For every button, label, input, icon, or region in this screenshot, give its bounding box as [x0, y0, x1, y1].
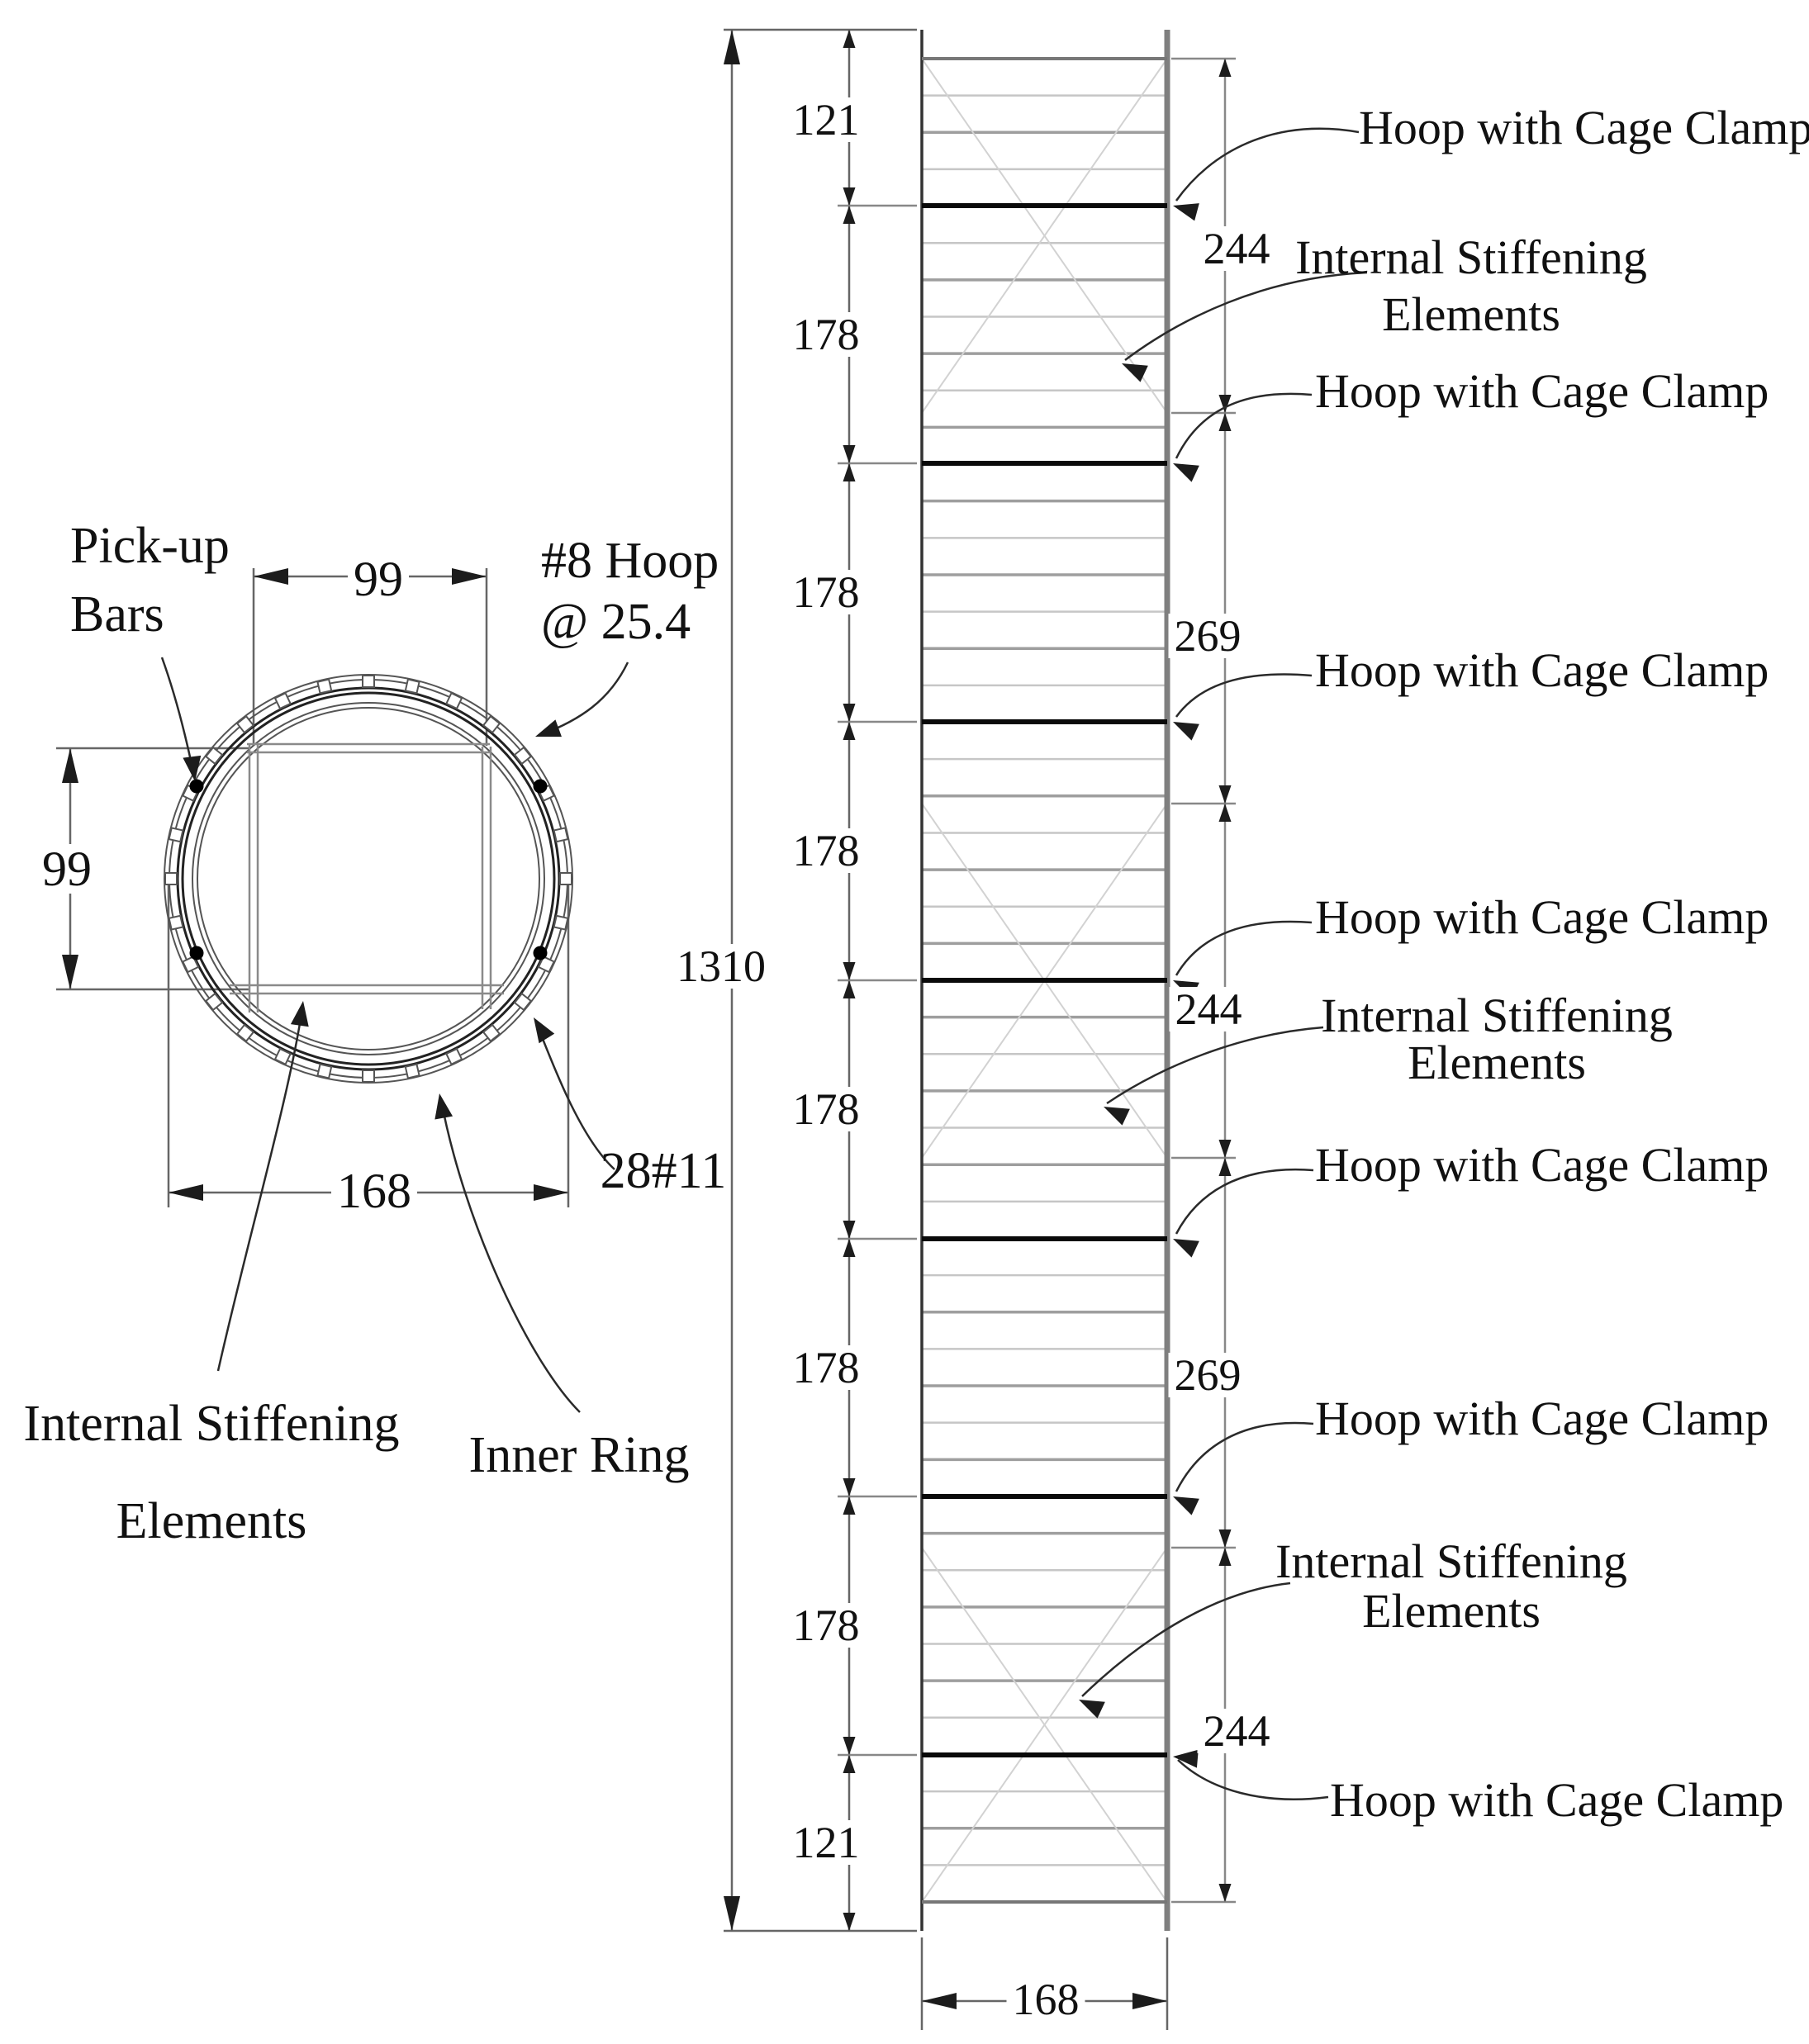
- leader-hoop-clamp-5-arrowhead: [1173, 1239, 1199, 1258]
- cross-width-dim: 99: [348, 554, 409, 604]
- chain-tick-arrow: [1219, 1884, 1232, 1902]
- chain-tick-arrow: [1219, 804, 1232, 822]
- longitudinal-bar-square: [363, 1070, 374, 1082]
- left-segment-dim-3: 178: [787, 828, 866, 873]
- overall-dim-arrow: [724, 1896, 740, 1931]
- pickup-bar-dot: [534, 780, 548, 794]
- ise-label-1-line1: Internal Stiffening: [1295, 234, 1647, 282]
- chain-tick-arrow: [843, 187, 856, 206]
- chain-tick-arrow: [843, 1221, 856, 1239]
- leader-hoop-clamp-7-arrowhead: [1173, 1750, 1199, 1768]
- left-segment-dim-5: 178: [787, 1345, 866, 1390]
- elevation-width-dim: 168: [1007, 1977, 1085, 2022]
- longitudinal-bar-square: [169, 828, 183, 842]
- longitudinal-bar-square: [406, 680, 420, 694]
- cross-dim-arrow: [62, 748, 78, 783]
- longitudinal-bar-square: [560, 873, 572, 884]
- leader-hoop-clamp-6-arrowhead: [1173, 1496, 1199, 1515]
- inner-ring-label: Inner Ring: [469, 1430, 690, 1481]
- leader-hoop-clamp-5: [1176, 1169, 1313, 1234]
- chain-tick-arrow: [843, 1737, 856, 1755]
- chain-tick-arrow: [843, 1913, 856, 1931]
- chain-tick-arrow: [1219, 1140, 1232, 1158]
- cross-dim-arrow: [452, 568, 487, 585]
- right-segment-dim-1: 269: [1169, 614, 1247, 658]
- left-segment-dim-4: 178: [787, 1087, 866, 1131]
- leader-ise-2-arrowhead: [1104, 1107, 1130, 1126]
- cross-ise-label-line1: Internal Stiffening: [23, 1398, 399, 1449]
- chain-tick-arrow: [843, 1496, 856, 1515]
- chain-tick-arrow: [843, 722, 856, 740]
- cross-height-dim: 99: [36, 844, 97, 894]
- chain-tick-arrow: [843, 1755, 856, 1773]
- leader-hoop-clamp-2-arrowhead: [1173, 463, 1199, 482]
- longitudinal-bar-square: [554, 828, 568, 842]
- chain-tick-arrow: [843, 30, 856, 48]
- leader-hoop-clamp-3: [1176, 674, 1312, 717]
- chain-tick-arrow: [843, 1239, 856, 1257]
- leader-hoop-clamp-1: [1176, 129, 1359, 201]
- longitudinal-bar-square: [317, 680, 331, 694]
- leader-hoop-clamp-1-arrowhead: [1173, 203, 1199, 221]
- hoop-clamp-label-4: Hoop with Cage Clamp: [1315, 894, 1769, 941]
- leader-hoop-clamp-2: [1176, 394, 1312, 458]
- pickup-bars-label-line2: Bars: [70, 589, 164, 640]
- ise-label-1-line2: Elements: [1382, 291, 1560, 339]
- leader-hoop-clamp-6: [1176, 1423, 1313, 1492]
- width-dim-arrow: [1132, 1993, 1167, 2009]
- overall-dim-arrow: [724, 30, 740, 64]
- cross-dim-arrow: [254, 568, 288, 585]
- left-segment-dim-2: 178: [787, 570, 866, 614]
- hoop-clamp-label-6: Hoop with Cage Clamp: [1315, 1395, 1769, 1443]
- chain-tick-arrow: [843, 206, 856, 224]
- left-segment-dim-6: 178: [787, 1603, 866, 1648]
- ise-label-3-line1: Internal Stiffening: [1275, 1538, 1627, 1586]
- leader-ise-3-arrowhead: [1079, 1700, 1105, 1719]
- overall-height-dim: 1310: [671, 944, 772, 989]
- dimension-lines: [56, 30, 1236, 2030]
- leader-hoop-clamp-4: [1176, 922, 1312, 975]
- cross-dim-arrow: [534, 1184, 568, 1201]
- chain-tick-arrow: [843, 1478, 856, 1496]
- cross-ise-label-line2: Elements: [116, 1496, 307, 1547]
- longitudinal-bar-square: [406, 1065, 420, 1079]
- longitudinal-bar-square: [554, 916, 568, 930]
- left-segment-dim-0: 121: [787, 97, 866, 142]
- longitudinal-bar-square: [165, 873, 177, 884]
- hoop-spec-label-line2: @ 25.4: [541, 596, 691, 647]
- hoop-clamp-label-5: Hoop with Cage Clamp: [1315, 1141, 1769, 1189]
- ise-label-3-line2: Elements: [1362, 1587, 1541, 1635]
- leader-28-11-arrowhead: [534, 1017, 554, 1043]
- chain-tick-arrow: [843, 980, 856, 998]
- pickup-bar-dot: [190, 780, 204, 794]
- chain-tick-arrow: [1219, 785, 1232, 804]
- cage-ring-circle: [169, 680, 567, 1078]
- chain-tick-arrow: [1219, 59, 1232, 77]
- longitudinal-bar-square: [169, 916, 183, 930]
- left-segment-dim-7: 121: [787, 1820, 866, 1865]
- cross-diameter-dim: 168: [331, 1166, 417, 1216]
- chain-tick-arrow: [843, 962, 856, 980]
- dimension-arrowheads: [62, 30, 1232, 2009]
- hoop-spec-label-line1: #8 Hoop: [541, 535, 719, 586]
- cross-section-linework: [164, 675, 572, 1083]
- hoop-clamp-label-2: Hoop with Cage Clamp: [1315, 368, 1769, 415]
- right-segment-dim-2: 244: [1170, 987, 1248, 1031]
- cage-ring-circle: [164, 675, 572, 1083]
- hoop-clamp-label-3: Hoop with Cage Clamp: [1315, 647, 1769, 695]
- right-segment-dim-4: 244: [1198, 1709, 1276, 1753]
- hoop-clamp-label-7: Hoop with Cage Clamp: [1330, 1776, 1783, 1824]
- drawing-canvas: Pick-up Bars #8 Hoop @ 25.4 99 99 168 28…: [0, 0, 1809, 2044]
- chain-tick-arrow: [1219, 413, 1232, 431]
- chain-tick-arrow: [843, 704, 856, 722]
- ise-label-2-line2: Elements: [1408, 1039, 1586, 1087]
- chain-tick-arrow: [1219, 1529, 1232, 1548]
- leader-inner-ring: [441, 1100, 580, 1412]
- longitudinal-bars-label: 28#11: [601, 1145, 727, 1197]
- pickup-bar-dot: [190, 946, 204, 960]
- leader-hoop-clamp-7: [1178, 1760, 1328, 1800]
- ise-label-2-line1: Internal Stiffening: [1321, 992, 1673, 1040]
- hoop-clamp-label-1: Hoop with Cage Clamp: [1359, 104, 1809, 152]
- right-segment-dim-0: 244: [1198, 226, 1276, 271]
- chain-tick-arrow: [843, 445, 856, 463]
- longitudinal-bar-square: [363, 676, 374, 687]
- leader-inner-ring-arrowhead: [434, 1093, 453, 1119]
- pickup-bars-label-line1: Pick-up: [70, 520, 230, 571]
- leader-hoop-spec-arrowhead: [535, 719, 562, 737]
- chain-tick-arrow: [1219, 1158, 1232, 1176]
- hoop-with-clamp-lines: [922, 206, 1167, 1755]
- cross-dim-arrow: [62, 955, 78, 989]
- pickup-bar-dot: [534, 946, 548, 960]
- chain-tick-arrow: [1219, 1548, 1232, 1566]
- width-dim-arrow: [922, 1993, 957, 2009]
- leader-ise-cross-arrowhead: [291, 1001, 309, 1027]
- longitudinal-bar-square: [317, 1065, 331, 1079]
- cross-dim-arrow: [169, 1184, 203, 1201]
- right-segment-dim-3: 269: [1169, 1353, 1247, 1397]
- cage-ring-circle: [178, 688, 559, 1069]
- chain-tick-arrow: [843, 463, 856, 481]
- left-segment-dim-1: 178: [787, 312, 866, 357]
- leader-hoop-clamp-3-arrowhead: [1173, 722, 1199, 741]
